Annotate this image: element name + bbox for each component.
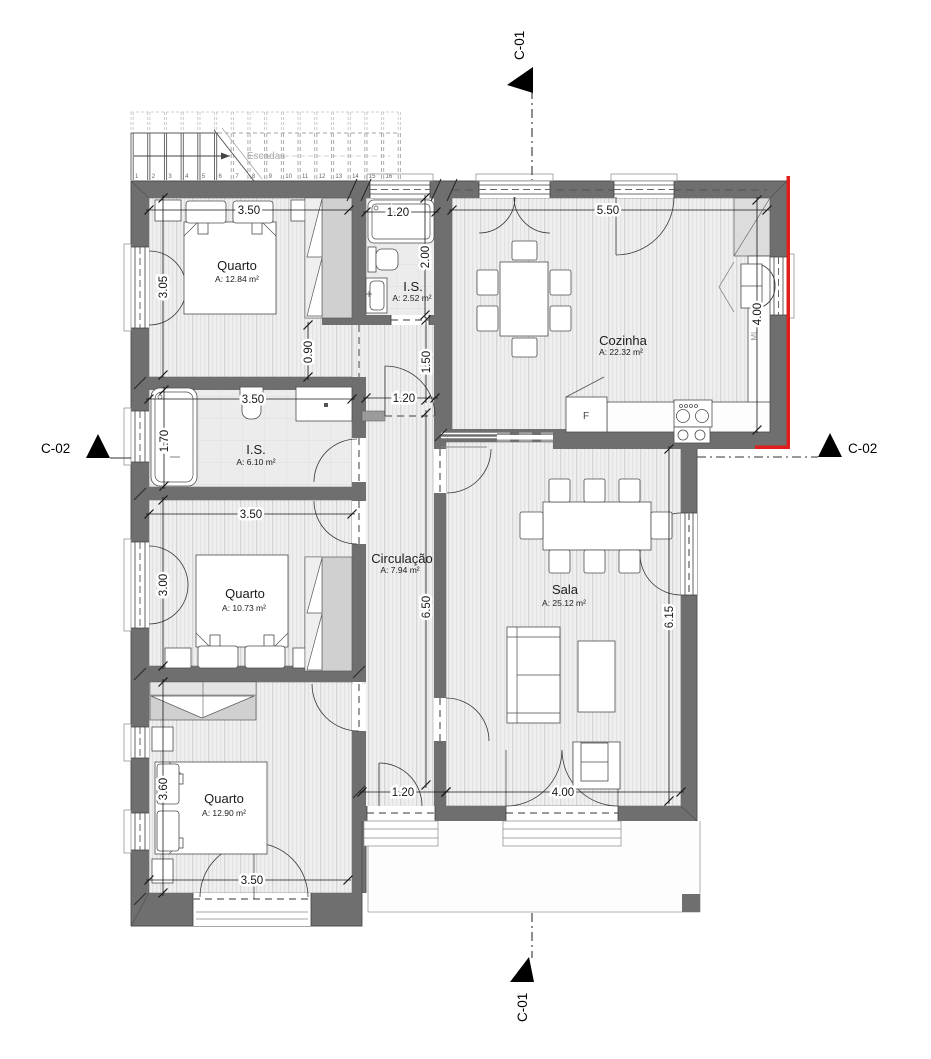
svg-text:ML: ML xyxy=(750,329,759,341)
svg-text:3.50: 3.50 xyxy=(242,394,264,406)
svg-text:1.20: 1.20 xyxy=(387,207,409,219)
svg-text:15: 15 xyxy=(369,174,376,180)
svg-text:13: 13 xyxy=(335,174,342,180)
svg-text:6.50: 6.50 xyxy=(421,596,433,618)
svg-text:A: 22.32 m²: A: 22.32 m² xyxy=(599,347,643,357)
svg-text:A: 12.90 m²: A: 12.90 m² xyxy=(202,808,246,818)
svg-text:Circulação: Circulação xyxy=(371,551,432,566)
svg-text:C-01: C-01 xyxy=(512,31,527,60)
svg-text:I.S.: I.S. xyxy=(403,279,423,294)
svg-text:0.90: 0.90 xyxy=(303,341,315,363)
svg-text:5.50: 5.50 xyxy=(597,205,619,217)
svg-text:Escadas: Escadas xyxy=(247,151,285,162)
svg-text:C-02: C-02 xyxy=(848,441,877,456)
svg-text:14: 14 xyxy=(352,174,359,180)
svg-text:F: F xyxy=(583,411,589,422)
svg-text:2.00: 2.00 xyxy=(420,246,432,268)
svg-text:A: 12.84 m²: A: 12.84 m² xyxy=(215,274,259,284)
svg-text:16: 16 xyxy=(386,174,393,180)
svg-text:3.00: 3.00 xyxy=(158,574,170,596)
svg-text:Sala: Sala xyxy=(552,582,579,597)
svg-text:A: 2.52 m²: A: 2.52 m² xyxy=(392,293,431,303)
svg-text:A: 10.73 m²: A: 10.73 m² xyxy=(222,603,266,613)
svg-text:4.00: 4.00 xyxy=(552,787,574,799)
svg-text:Quarto: Quarto xyxy=(217,258,257,273)
svg-text:10: 10 xyxy=(285,174,292,180)
svg-text:3.50: 3.50 xyxy=(241,875,263,887)
svg-text:4.00: 4.00 xyxy=(752,303,764,325)
svg-text:A: 6.10 m²: A: 6.10 m² xyxy=(236,457,275,467)
svg-text:1.50: 1.50 xyxy=(421,351,433,373)
svg-text:1.20: 1.20 xyxy=(392,787,414,799)
svg-text:12: 12 xyxy=(319,174,326,180)
svg-text:3.50: 3.50 xyxy=(238,205,260,217)
svg-text:1.20: 1.20 xyxy=(393,393,415,405)
svg-text:A: 7.94 m²: A: 7.94 m² xyxy=(380,565,419,575)
svg-text:3.05: 3.05 xyxy=(158,276,170,298)
svg-text:11: 11 xyxy=(302,174,309,180)
svg-text:Quarto: Quarto xyxy=(204,791,244,806)
svg-text:1.70: 1.70 xyxy=(159,430,171,452)
svg-text:Cozinha: Cozinha xyxy=(599,333,647,348)
svg-text:3.50: 3.50 xyxy=(240,509,262,521)
svg-text:C-01: C-01 xyxy=(515,993,530,1022)
svg-text:C-02: C-02 xyxy=(41,441,70,456)
svg-text:A: 25.12 m²: A: 25.12 m² xyxy=(542,598,586,608)
svg-text:Quarto: Quarto xyxy=(225,586,265,601)
svg-text:3.60: 3.60 xyxy=(158,778,170,800)
svg-text:6.15: 6.15 xyxy=(664,606,676,628)
svg-text:I.S.: I.S. xyxy=(246,442,266,457)
